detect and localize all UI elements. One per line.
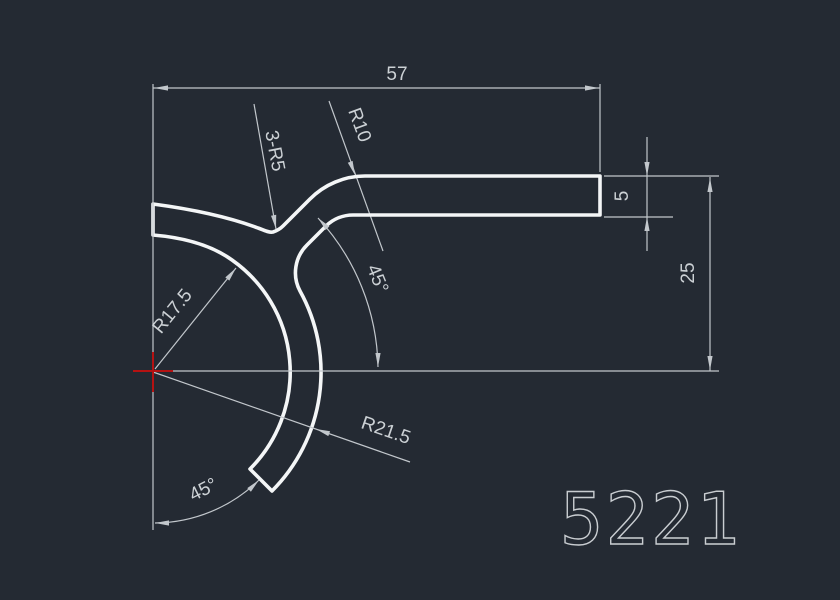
arrowhead bbox=[247, 480, 259, 492]
dim-label-45-top: 45° bbox=[362, 262, 392, 297]
dim-outer-hook-radius[interactable]: R21.5 bbox=[153, 372, 413, 462]
dim-overall-width[interactable]: 57 bbox=[153, 64, 600, 530]
arrowhead bbox=[271, 215, 276, 229]
dim-label-25: 25 bbox=[678, 262, 699, 283]
arrowhead bbox=[644, 217, 649, 231]
arrowhead bbox=[375, 353, 380, 367]
arrowhead bbox=[348, 161, 355, 175]
dim-label-45-bottom: 45° bbox=[186, 474, 221, 506]
arrowhead bbox=[644, 162, 649, 176]
dim-end-cut-angle[interactable]: 45° bbox=[155, 474, 259, 525]
dim-height[interactable]: 25 bbox=[678, 177, 713, 371]
profile-outline[interactable] bbox=[153, 176, 600, 491]
arrowhead bbox=[707, 356, 712, 370]
dim-web-angle[interactable]: 45° bbox=[318, 218, 392, 367]
cad-canvas[interactable]: 57 5 25 R17.5 R10 3-R5 45° bbox=[0, 0, 840, 600]
dim-label-57: 57 bbox=[386, 64, 407, 85]
dim-fillet-note[interactable]: 3-R5 bbox=[260, 129, 288, 229]
dim-label-r17-5: R17.5 bbox=[149, 285, 197, 338]
arrowhead bbox=[155, 520, 169, 525]
arrowhead bbox=[154, 85, 168, 90]
dim-label-5: 5 bbox=[612, 191, 633, 202]
dim-label-r21-5: R21.5 bbox=[358, 413, 413, 449]
angle-arc-top bbox=[318, 218, 378, 367]
center-crosshair bbox=[133, 352, 173, 392]
arrowhead bbox=[316, 429, 330, 436]
dim-bar-thickness[interactable]: 5 bbox=[604, 137, 719, 251]
part-number-label: 5221 bbox=[560, 477, 741, 561]
arrowhead bbox=[585, 85, 599, 90]
dim-label-r10: R10 bbox=[343, 105, 375, 145]
dim-corner-radius[interactable]: R10 bbox=[343, 105, 375, 175]
cad-viewport: { "drawing": { "part_number": "5221", "d… bbox=[0, 0, 840, 600]
arrowhead bbox=[707, 178, 712, 192]
dim-inner-hook-radius[interactable]: R17.5 bbox=[149, 268, 236, 369]
